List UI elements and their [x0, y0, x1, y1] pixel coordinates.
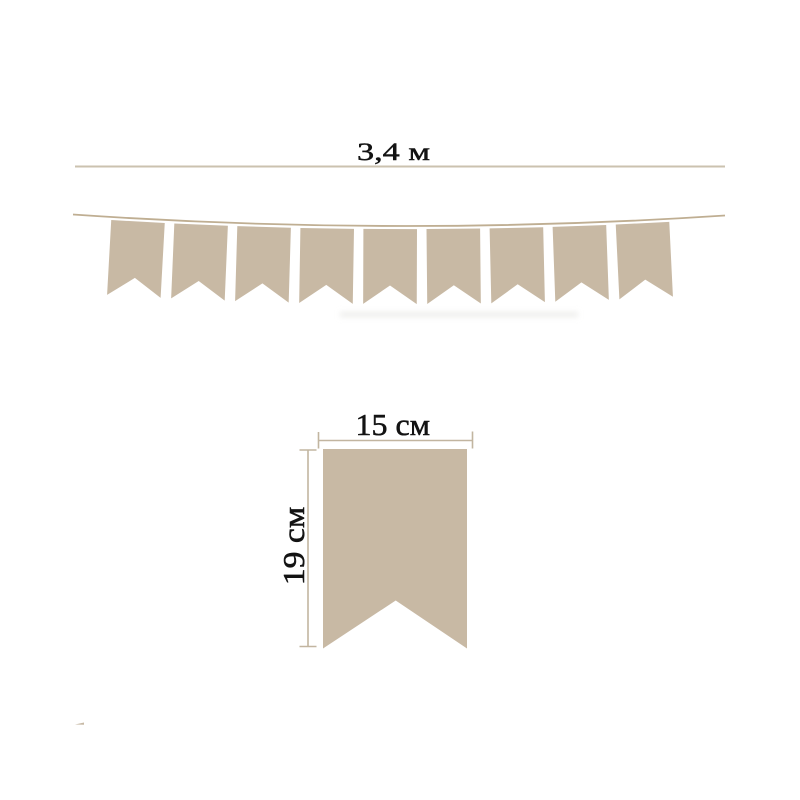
svg-text:19 см: 19 см — [276, 507, 311, 586]
svg-text:15 см: 15 см — [356, 407, 431, 442]
svg-text:3,4 м: 3,4 м — [357, 139, 430, 166]
